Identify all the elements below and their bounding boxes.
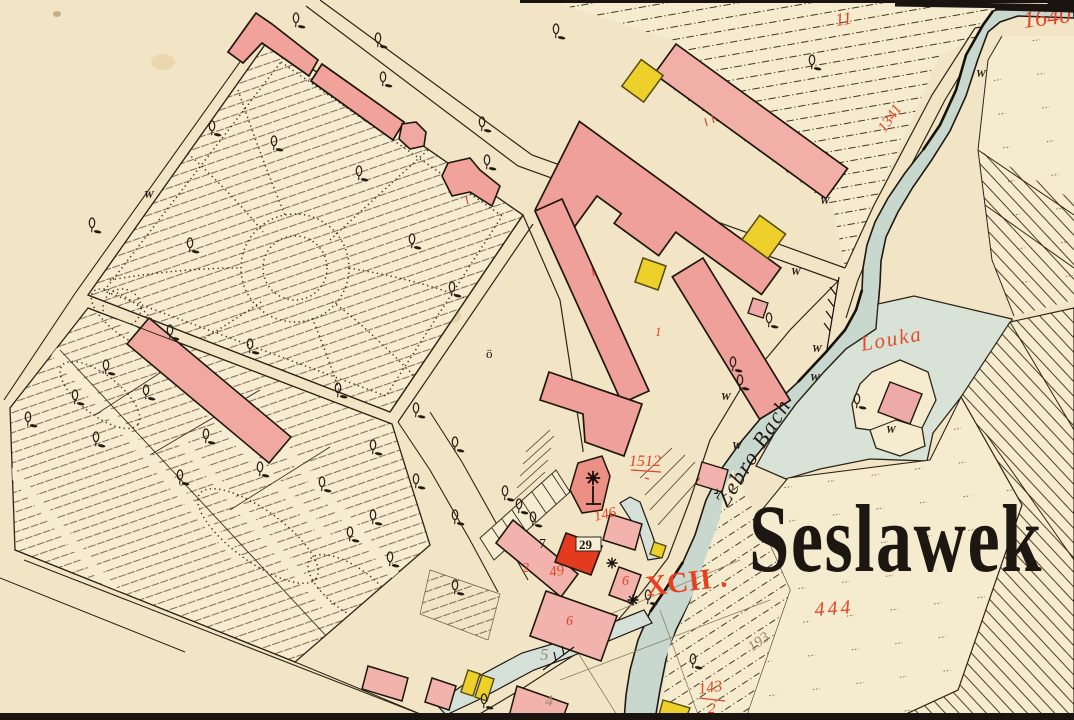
svg-text:W: W <box>976 68 987 80</box>
svg-text:W: W <box>812 343 823 355</box>
svg-text:W: W <box>791 266 802 278</box>
svg-text:W: W <box>732 440 743 452</box>
svg-text:6: 6 <box>622 574 629 589</box>
svg-text:6: 6 <box>566 614 573 629</box>
svg-text:W: W <box>886 424 897 436</box>
svg-text:W: W <box>820 195 831 207</box>
svg-text:Seslawek: Seslawek <box>749 485 1043 592</box>
svg-text:1512: 1512 <box>629 453 661 470</box>
svg-text:2: 2 <box>522 561 529 576</box>
svg-text:W: W <box>721 391 732 403</box>
svg-text:143: 143 <box>697 678 723 698</box>
svg-text:29: 29 <box>579 537 593 552</box>
svg-text:7: 7 <box>539 537 546 552</box>
svg-text:W: W <box>810 372 821 384</box>
svg-text:1: 1 <box>655 324 662 339</box>
svg-text:444: 444 <box>814 596 854 621</box>
svg-text:ö: ö <box>486 346 493 361</box>
svg-text:4: 4 <box>545 693 553 710</box>
svg-text:5: 5 <box>540 645 549 664</box>
svg-text:W: W <box>144 189 155 201</box>
svg-text:11: 11 <box>834 8 853 30</box>
